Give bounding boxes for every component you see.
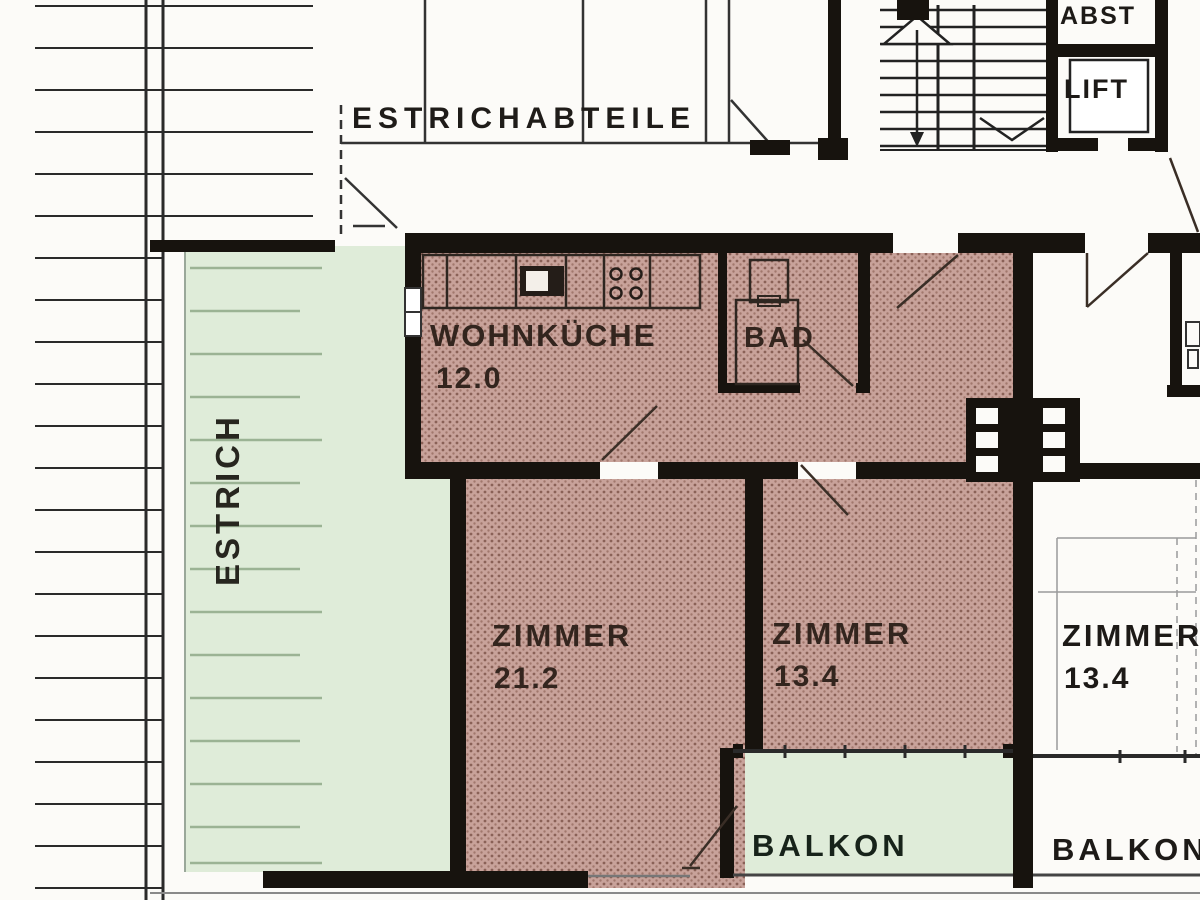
neighbor-room-label: ZIMMER <box>1062 618 1200 654</box>
bath-label: BAD <box>744 322 816 355</box>
kitchen-sink <box>520 266 564 296</box>
neighbor-balcony-label: BALKON <box>1052 832 1200 868</box>
room1-area: 21.2 <box>494 662 560 696</box>
floor-plan: ESTRICHABTEILE ABST LIFT ESTRICH WOHNKÜC… <box>0 0 1200 900</box>
kitchen-area: 12.0 <box>436 362 502 396</box>
door-swing-compartment <box>731 100 772 146</box>
storage-label: ABST <box>1060 2 1136 31</box>
balcony-label: BALKON <box>752 828 909 864</box>
neighbor-balcony-window <box>1033 750 1200 763</box>
window-west <box>405 288 421 336</box>
elevator-label: LIFT <box>1064 74 1129 105</box>
attic-compartments-label: ESTRICHABTEILE <box>352 102 696 136</box>
neighbor-fixture <box>1186 322 1200 368</box>
attic-label: ESTRICH <box>208 426 248 586</box>
room1-label: ZIMMER <box>492 618 632 654</box>
door-swing-landing-exit <box>1170 158 1198 232</box>
room2-label: ZIMMER <box>772 616 912 652</box>
door-swing-attic-left <box>345 178 397 228</box>
room2-area: 13.4 <box>774 660 840 694</box>
staircase <box>880 5 1046 150</box>
door-swing-neighbor <box>1087 253 1148 307</box>
neighbor-room-area: 13.4 <box>1064 662 1130 696</box>
kitchen-label: WOHNKÜCHE <box>430 318 656 354</box>
